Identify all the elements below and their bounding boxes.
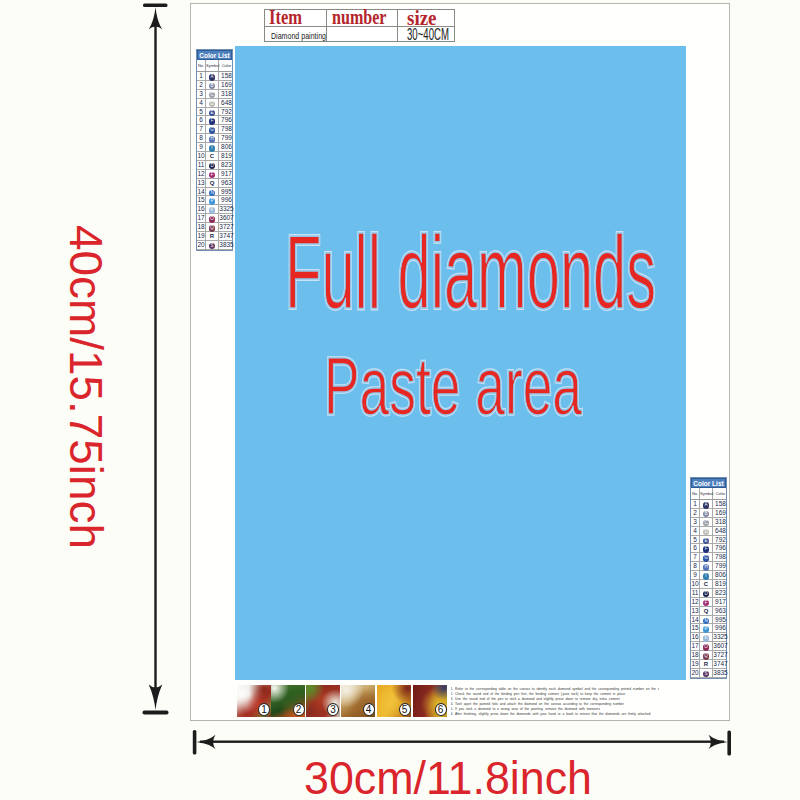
svg-text:Diamond painting: Diamond painting (271, 31, 326, 41)
svg-text:number: number (332, 6, 387, 28)
svg-text:40cm/15.75inch: 40cm/15.75inch (60, 225, 111, 549)
svg-text:Item: Item (269, 6, 302, 28)
svg-text:30~40CM: 30~40CM (407, 26, 449, 43)
svg-text:Full diamonds: Full diamonds (285, 215, 656, 330)
svg-text:Paste area: Paste area (324, 341, 583, 431)
svg-text:30cm/11.8inch: 30cm/11.8inch (304, 752, 592, 800)
